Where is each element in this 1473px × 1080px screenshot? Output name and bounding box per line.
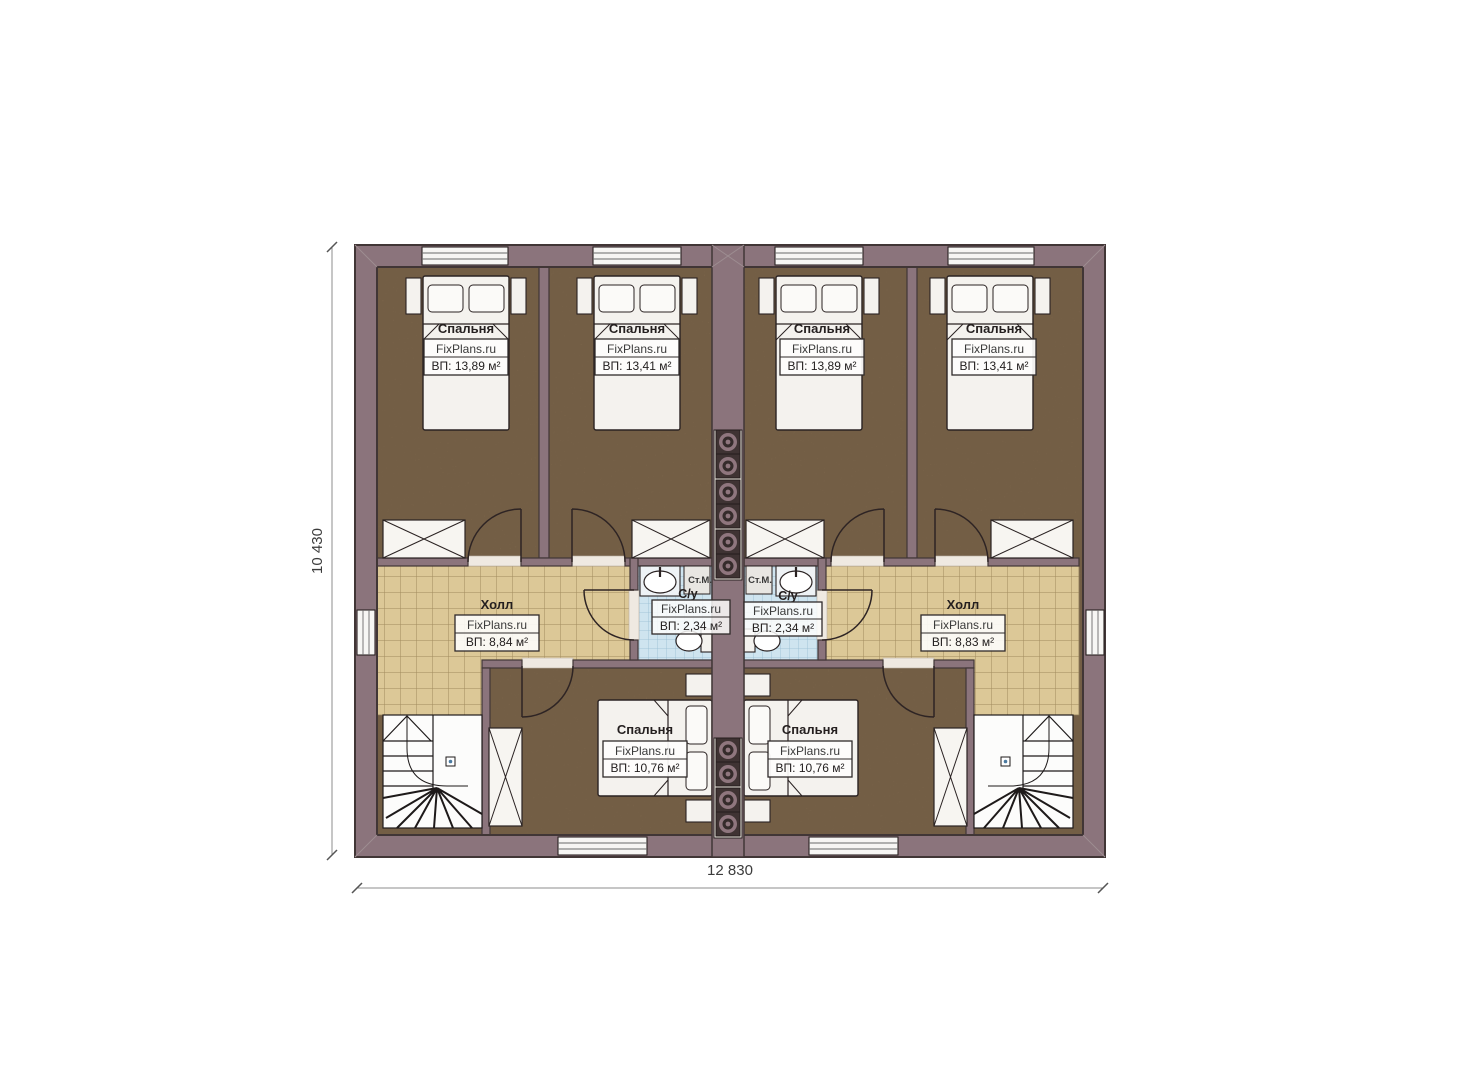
room-area: ВП: 13,89 м² [432, 359, 501, 373]
room-area: ВП: 8,84 м² [466, 635, 528, 649]
room-area: ВП: 13,41 м² [603, 359, 672, 373]
room-name: С/у [778, 589, 798, 603]
watermark: FixPlans.ru [436, 342, 496, 356]
room-name: Спальня [782, 722, 838, 737]
watermark: FixPlans.ru [467, 618, 527, 632]
watermark: FixPlans.ru [964, 342, 1024, 356]
room-name: Спальня [966, 321, 1022, 336]
room-name: Холл [947, 597, 980, 612]
washing-machine-label: Ст.М. [748, 575, 772, 586]
room-area: ВП: 13,89 м² [788, 359, 857, 373]
washing-machine-label: Ст.М. [688, 575, 712, 586]
room-name: Спальня [794, 321, 850, 336]
room-name: Спальня [438, 321, 494, 336]
watermark: FixPlans.ru [780, 744, 840, 758]
room-name: С/у [678, 587, 698, 601]
dimension-width-label: 12 830 [707, 862, 753, 879]
room-area: ВП: 10,76 м² [776, 761, 845, 775]
room-area: ВП: 8,83 м² [932, 635, 994, 649]
room-name: Холл [481, 597, 514, 612]
room-area: ВП: 13,41 м² [960, 359, 1029, 373]
watermark: FixPlans.ru [933, 618, 993, 632]
room-area: ВП: 2,34 м² [752, 621, 814, 635]
room-area: ВП: 10,76 м² [611, 761, 680, 775]
floor-plan-canvas: 12 830 10 430 Спальня FixPlans.ru ВП: 13… [0, 0, 1473, 1080]
watermark: FixPlans.ru [661, 602, 721, 616]
watermark: FixPlans.ru [753, 604, 813, 618]
room-name: Спальня [617, 722, 673, 737]
room-name: Спальня [609, 321, 665, 336]
watermark: FixPlans.ru [792, 342, 852, 356]
dimension-height-label: 10 430 [309, 528, 326, 574]
watermark: FixPlans.ru [607, 342, 667, 356]
floor-plan-drawing: 12 830 10 430 Спальня FixPlans.ru ВП: 13… [0, 0, 1473, 1080]
room-area: ВП: 2,34 м² [660, 619, 722, 633]
watermark: FixPlans.ru [615, 744, 675, 758]
